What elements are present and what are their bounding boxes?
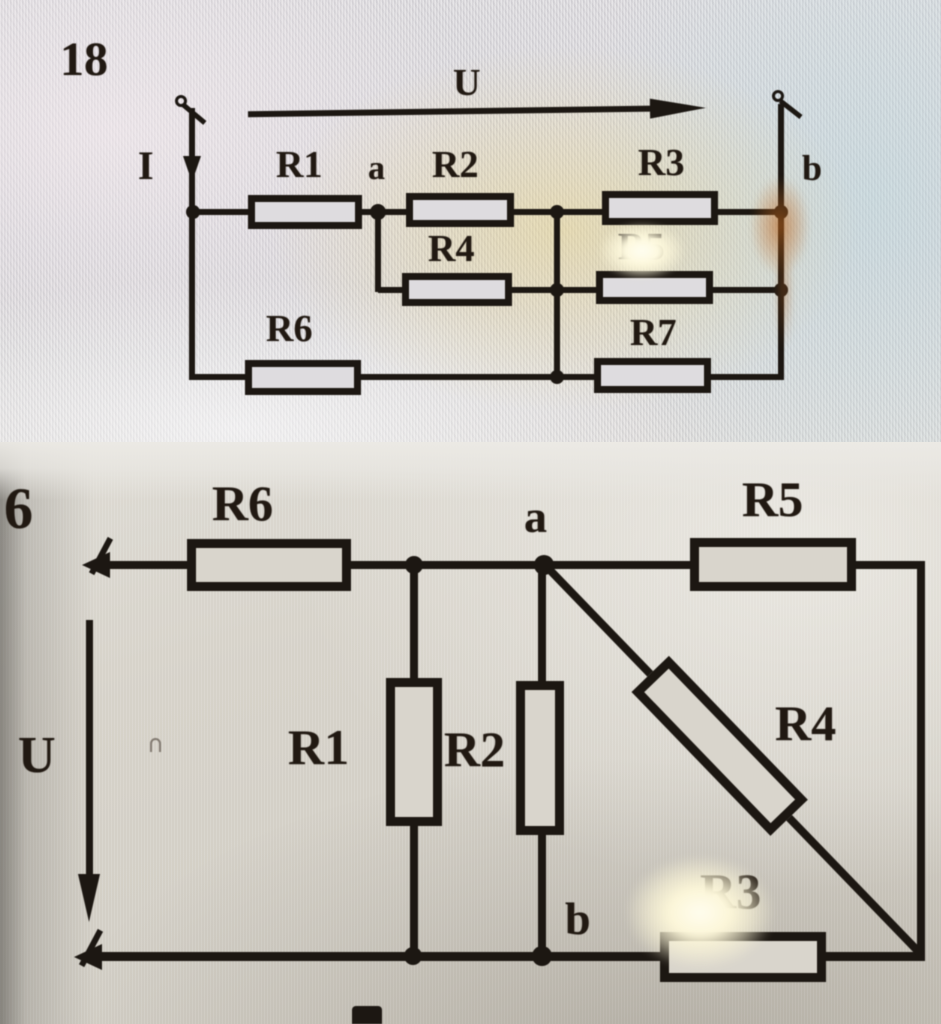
resistor-r5-6 (690, 538, 856, 591)
left-branch-wire (189, 108, 195, 380)
junction-dot (404, 947, 422, 965)
voltage-arrow-line (248, 106, 652, 118)
resistor-r4-18 (402, 273, 512, 306)
junction-dot (774, 205, 788, 219)
voltage-label-6: U (18, 730, 56, 782)
node-a-label-6: a (524, 494, 547, 540)
resistor-r2-18 (406, 193, 514, 227)
junction-dot (186, 205, 200, 219)
junction-dot (550, 370, 564, 384)
resistor-r3-label: R3 (638, 144, 684, 182)
node-a-dot-6 (534, 555, 554, 575)
bottom-left-terminal-arrow-icon (74, 944, 102, 970)
resistor-r1-18 (248, 195, 362, 229)
top-left-terminal-arrow-icon (82, 552, 110, 578)
resistor-r6-label: R6 (266, 310, 312, 348)
resistor-r2-6 (516, 681, 564, 835)
junction-dot (774, 283, 788, 297)
tiny-print-speck (150, 738, 161, 752)
right-arrowhead-icon (650, 98, 706, 119)
resistor-r2-label: R2 (432, 146, 478, 184)
resistor-r6-label-6: R6 (212, 478, 273, 528)
voltage-label-18: U (453, 64, 480, 102)
photo-of-circuit-diagrams: 18 U I b R1 a R2 R3 (0, 0, 941, 1024)
resistor-r3-label-6: R3 (700, 866, 761, 916)
node-b-label-18: b (802, 150, 822, 186)
right-terminal-icon (772, 90, 784, 102)
resistor-r6-18 (245, 360, 361, 395)
junction-dot (550, 283, 564, 297)
r2-bottom-lead (538, 829, 546, 957)
resistor-r1-label: R1 (276, 146, 322, 184)
resistor-r6-6 (187, 539, 351, 591)
resistor-r7-18 (594, 358, 711, 393)
node-b-dot-6 (532, 946, 552, 966)
current-arrowhead-icon (183, 156, 201, 182)
resistor-r1-label-6: R1 (288, 722, 349, 772)
node-a-label-18: a (368, 152, 385, 186)
cropped-label-fragment (352, 1006, 382, 1024)
left-terminal-icon (175, 95, 187, 107)
resistor-r5-label: R5 (618, 228, 664, 266)
resistor-r2-label-6: R2 (444, 724, 505, 774)
node-b-label-6: b (565, 896, 591, 942)
voltage-arrow-line-6 (86, 620, 93, 878)
resistor-r5-label-6: R5 (742, 474, 803, 524)
junction-dot (405, 556, 423, 574)
resistor-r7-label: R7 (630, 314, 676, 352)
resistor-r3-6 (660, 932, 826, 982)
r1-bottom-lead (410, 820, 418, 960)
resistor-r1-6 (386, 678, 442, 826)
right-branch-wire-6 (917, 561, 925, 960)
junction-dot (550, 205, 564, 219)
node-a-dot-18 (370, 204, 386, 220)
right-branch-wire (778, 104, 784, 380)
down-arrowhead-icon (78, 874, 100, 922)
problem-number-18: 18 (60, 36, 108, 84)
resistor-r3-18 (602, 191, 718, 225)
current-label-18: I (138, 146, 154, 186)
resistor-r4-label: R4 (428, 230, 474, 268)
node-a-drop-wire (375, 212, 381, 292)
resistor-r5-18 (596, 271, 713, 304)
problem-number-6: 6 (4, 480, 33, 538)
r1-top-lead (410, 565, 418, 685)
r2-top-lead (538, 565, 546, 687)
resistor-r4-label-6: R4 (775, 698, 836, 748)
